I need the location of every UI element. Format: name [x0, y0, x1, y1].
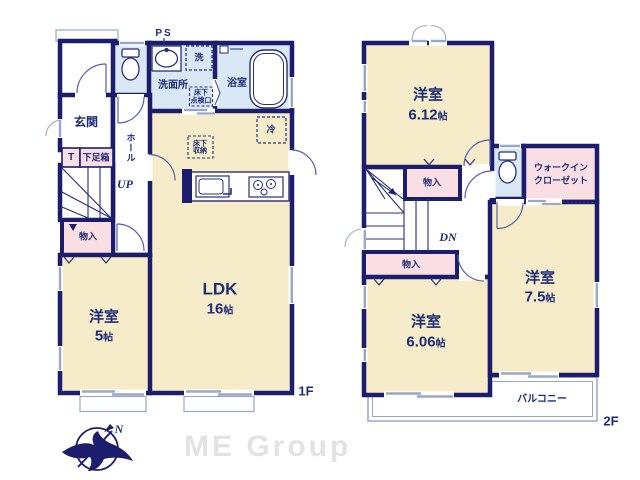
brand-logo-text: ME Group — [184, 430, 351, 464]
toilet-icon-1f — [122, 49, 139, 80]
floor2-label: 2F — [603, 415, 618, 428]
bird-icon — [62, 431, 133, 471]
hall-label: ホール — [126, 133, 135, 163]
ldk-size-unit: 帖 — [223, 306, 233, 317]
western5-name: 洋室 — [89, 310, 119, 325]
walk-in-closet — [524, 146, 597, 202]
terrace-step-left — [80, 397, 146, 412]
western5-size: 5帖 — [95, 329, 113, 344]
ldk-size: 16帖 — [207, 302, 234, 317]
floor-hatch-label-1: 床下 — [194, 90, 208, 97]
western-room-612 — [364, 43, 492, 167]
western612-size-unit: 帖 — [438, 112, 448, 123]
dn-label: DN — [439, 231, 456, 243]
shoe-cabinet-label: 下足箱 — [82, 154, 109, 163]
western5-size-unit: 帖 — [103, 333, 113, 344]
storage-2f-upper-label: 物入 — [423, 179, 441, 188]
storage-2f-lower-label: 物入 — [402, 261, 420, 270]
western75-name: 洋室 — [525, 271, 555, 286]
western606-size: 6.06帖 — [406, 335, 445, 350]
floor1-label: 1F — [298, 385, 313, 398]
floorplan-page: PS 玄関 T 下足箱 ホール UP 物入 洗面所 洗 床下 点検口 浴室 冷 … — [0, 0, 640, 480]
underfloor-label-1: 床下 — [193, 140, 207, 147]
western75-size-num: 7.5 — [525, 289, 546, 306]
terrace-step-right — [184, 397, 254, 412]
entrance-label: 玄関 — [74, 116, 98, 128]
stove-icon — [249, 177, 283, 197]
underfloor-label-2: 収納 — [193, 148, 207, 155]
washbasin-icon — [152, 46, 181, 71]
ldk-name: LDK — [203, 281, 238, 298]
ldk-room — [149, 111, 292, 393]
western612-size-num: 6.12 — [408, 107, 437, 124]
balcony-label: バルコニー — [517, 395, 567, 405]
western606-size-unit: 帖 — [436, 339, 446, 350]
western75-size: 7.5帖 — [525, 290, 556, 305]
floor2-plan — [345, 26, 600, 422]
shoe-t-label: T — [68, 153, 74, 163]
western606-size-num: 6.06 — [406, 334, 435, 351]
washroom-label: 洗面所 — [158, 81, 188, 91]
wic-label-2: クローゼット — [534, 177, 588, 186]
western606-name: 洋室 — [411, 315, 441, 330]
fridge-label: 冷 — [266, 126, 275, 135]
storage-1f-label: 物入 — [79, 233, 97, 242]
laundry-label: 洗 — [194, 54, 203, 63]
up-label: UP — [117, 178, 133, 190]
toilet-icon-2f — [499, 152, 516, 183]
compass-n-label: N — [115, 423, 124, 435]
wic-label-1: ウォークイン — [534, 164, 588, 173]
kitchen-counter — [182, 169, 289, 203]
kitchen-sink-icon — [196, 176, 231, 197]
western612-size: 6.12帖 — [408, 108, 447, 123]
floor-hatch-label-2: 点検口 — [191, 98, 212, 105]
bath-label: 浴室 — [227, 79, 247, 89]
porch — [60, 41, 115, 96]
western75-size-unit: 帖 — [545, 294, 555, 305]
ldk-size-num: 16 — [207, 301, 224, 318]
western612-name: 洋室 — [413, 88, 443, 103]
ps-label: PS — [155, 29, 172, 39]
